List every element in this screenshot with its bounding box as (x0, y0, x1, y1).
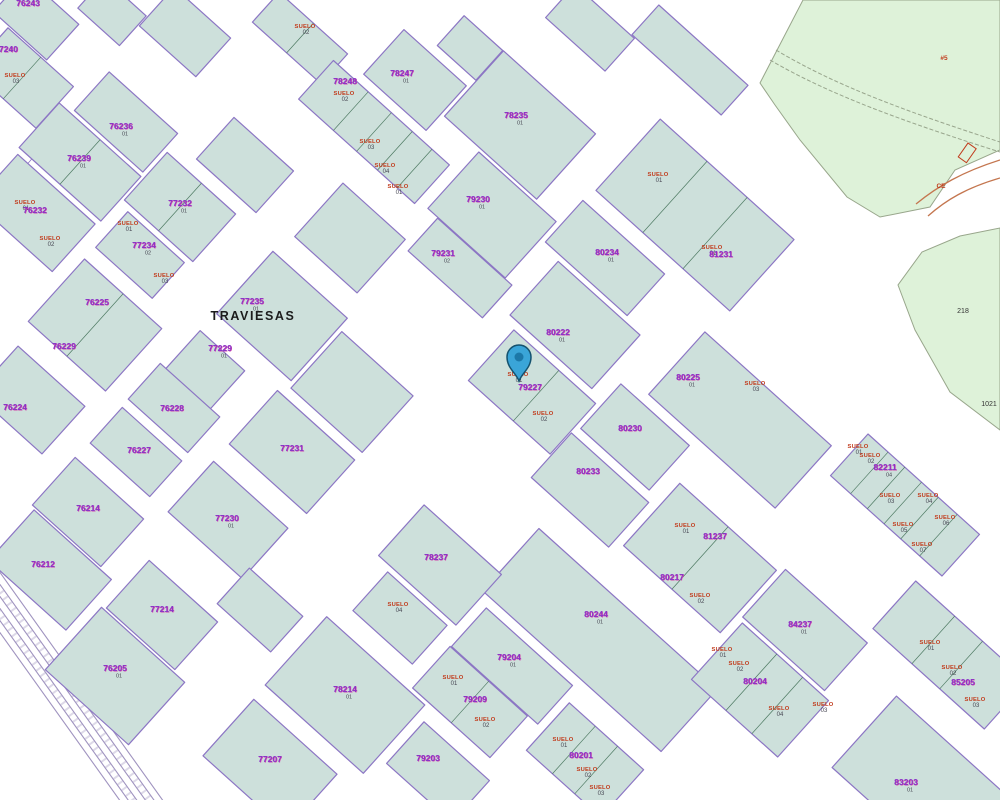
cadastral-map[interactable]: SUELO03SUELO01SUELO02SUELO01SUELO03SUELO… (0, 0, 1000, 800)
suelo-number: 02 (737, 667, 744, 673)
parcel-number-label: 76212 (31, 559, 55, 569)
parcel-block[interactable] (78, 0, 146, 46)
parcel-number: 78248 (333, 76, 357, 86)
parcel-number: 80233 (576, 466, 600, 476)
parcel-number: 83203 (894, 777, 918, 787)
parcel-number: 79204 (497, 652, 521, 662)
suelo-number: 01 (683, 529, 690, 535)
parcel-sub-number: 01 (608, 258, 614, 264)
parcel-block[interactable] (295, 183, 406, 293)
suelo-number: 07 (920, 548, 927, 554)
parcel-number: 81231 (709, 249, 733, 259)
parcel-number: 81237 (703, 531, 727, 541)
parcel-number-label: 85205 (951, 677, 975, 687)
suelo-number: 03 (753, 387, 760, 393)
parcel-block[interactable] (139, 0, 230, 77)
suelo-number: 02 (342, 97, 349, 103)
parcel-number: 77235 (240, 296, 264, 306)
suelo-number: 03 (13, 79, 20, 85)
parcel-sub-number: 01 (510, 663, 516, 669)
parcel-block[interactable] (831, 434, 980, 576)
parcel-sub-number: 01 (221, 354, 227, 360)
parcel-number: 77230 (215, 513, 239, 523)
parcel-number: 78214 (333, 684, 357, 694)
parcel-number: 76214 (76, 503, 100, 513)
suelo-number: 01 (451, 681, 458, 687)
parcel-number: 80201 (569, 750, 593, 760)
parcel-number: 78235 (504, 110, 528, 120)
parcel-sub-number: 01 (403, 79, 409, 85)
parcel-number-label: 81231 (709, 249, 733, 259)
suelo-number: 01 (561, 743, 568, 749)
parcel-number: 80225 (676, 372, 700, 382)
parcel-number-label: 80233 (576, 466, 600, 476)
parcel-number-label: 81237 (703, 531, 727, 541)
parcel-number: 76227 (127, 445, 151, 455)
map-annotation-#5: #5 (940, 55, 948, 62)
parcel-number: 77214 (150, 604, 174, 614)
parcel-block[interactable] (632, 5, 748, 115)
parcel-number: 76205 (103, 663, 127, 673)
parcel-sub-number: 01 (228, 524, 234, 530)
parcel-number: 76228 (160, 403, 184, 413)
parcel-sub-number: 01 (181, 209, 187, 215)
parcel-number: 77240 (0, 44, 18, 54)
parcel-sub-number: 02 (145, 251, 151, 257)
parcel-number: 77207 (258, 754, 282, 764)
parcel-number-label: 79209 (463, 694, 487, 704)
parcel-number-label: 76227 (127, 445, 151, 455)
parcel-number: 80222 (546, 327, 570, 337)
rustic-north-east[interactable] (760, 0, 1000, 217)
suelo-number: 01 (656, 178, 663, 184)
parcel-number: 85205 (951, 677, 975, 687)
parcel-number: 77232 (168, 198, 192, 208)
parcel-number-label: 80230 (618, 423, 642, 433)
suelo-number: 03 (368, 145, 375, 151)
parcel-number-label: 79203 (416, 753, 440, 763)
parcel-number-label: 77240 (0, 44, 18, 54)
parcel-number: 80234 (595, 247, 619, 257)
parcel-block[interactable] (217, 568, 303, 652)
parcel-sub-number: 01 (559, 338, 565, 344)
parcel-number: 82211 (873, 462, 896, 472)
suelo-number: 02 (698, 599, 705, 605)
parcel-number: 79203 (416, 753, 440, 763)
parcel-number: 79231 (431, 248, 455, 258)
parcel-sub-number: 01 (597, 620, 603, 626)
suelo-number: 04 (926, 499, 933, 505)
parcel-number: 76243 (16, 0, 40, 8)
parcel-number-label: 77207 (258, 754, 282, 764)
parcel-sub-number: 01 (517, 121, 523, 127)
parcel-number-label: 80201 (569, 750, 593, 760)
parcel-sub-number: 02 (444, 259, 450, 265)
parcel-number: 79230 (466, 194, 490, 204)
cadastral-map-viewport[interactable]: SUELO03SUELO01SUELO02SUELO01SUELO03SUELO… (0, 0, 1000, 800)
suelo-number: 02 (483, 723, 490, 729)
parcel-sub-number: 01 (80, 164, 86, 170)
parcel-number: 78247 (390, 68, 414, 78)
suelo-number: 01 (928, 646, 935, 652)
parcel-number: 79227 (518, 382, 542, 392)
parcel-number: 84237 (788, 619, 812, 629)
parcel-block[interactable] (649, 332, 832, 508)
suelo-number: 06 (943, 521, 950, 527)
parcel-number: 80217 (660, 572, 684, 582)
parcel-number: 80244 (584, 609, 608, 619)
suelo-number: 01 (396, 190, 403, 196)
suelo-number: 01 (720, 653, 727, 659)
suelo-number: 04 (777, 712, 784, 718)
parcel-sub-number: 01 (689, 383, 695, 389)
parcel-sub-number: 01 (801, 630, 807, 636)
suelo-number: 02 (541, 417, 548, 423)
parcel-number-label: 77231 (280, 443, 304, 453)
suelo-number: 03 (973, 703, 980, 709)
parcel-number-label: 79227 (518, 382, 542, 392)
suelo-number: 05 (901, 528, 908, 534)
street-name-label: TRAVIESAS (210, 309, 295, 323)
parcel-number-label: 80204 (743, 676, 767, 686)
parcel-number: 76236 (109, 121, 133, 131)
parcel-number: 80204 (743, 676, 767, 686)
parcel-sub-number: 01 (479, 205, 485, 211)
parcel-number-label: 77214 (150, 604, 174, 614)
parcel-number-label: 76214 (76, 503, 100, 513)
suelo-number: 02 (48, 242, 55, 248)
parcel-number-label: 76243 (16, 0, 40, 8)
parcel-number: 76232 (23, 205, 47, 215)
parcel-sub-number: 01 (116, 674, 122, 680)
parcel-number: 80230 (618, 423, 642, 433)
map-annotation-ce: CE (936, 183, 946, 190)
parcel-number: 76229 (52, 341, 76, 351)
suelo-number: 01 (126, 227, 133, 233)
parcel-number: 76212 (31, 559, 55, 569)
parcel-block[interactable] (546, 0, 635, 71)
parcel-number-label: 76229 (52, 341, 76, 351)
parcel-number-label: 76232 (23, 205, 47, 215)
parcel-number: 76225 (85, 297, 109, 307)
parcel-block[interactable] (0, 346, 85, 454)
parcel-number: 76239 (67, 153, 91, 163)
suelo-number: 03 (888, 499, 895, 505)
parcel-number: 77234 (132, 240, 156, 250)
parcel-number-label: 76224 (3, 402, 27, 412)
parcel-number-label: 76225 (85, 297, 109, 307)
parcel-sub-number: 01 (907, 788, 913, 794)
rustic-east[interactable] (898, 228, 1000, 430)
parcel-number: 76224 (3, 402, 27, 412)
parcel-number: 77231 (280, 443, 304, 453)
parcel-sub-number: 01 (122, 132, 128, 138)
suelo-number: 03 (821, 708, 828, 714)
parcel-number-label: 78237 (424, 552, 448, 562)
parcel-sub-number: 04 (886, 473, 892, 479)
parcel-number: 79209 (463, 694, 487, 704)
map-annotation-1021: 1021 (981, 401, 997, 408)
map-annotation-218: 218 (957, 308, 969, 315)
parcel-sub-number: 01 (346, 695, 352, 701)
suelo-number: 03 (162, 279, 169, 285)
suelo-number: 04 (383, 169, 390, 175)
suelo-number: 04 (396, 608, 403, 614)
parcel-number-label: 80217 (660, 572, 684, 582)
suelo-number: 02 (303, 30, 310, 36)
parcel-number: 77229 (208, 343, 232, 353)
parcel-number: 78237 (424, 552, 448, 562)
parcel-number-label: 76228 (160, 403, 184, 413)
parcel-number-label: 78248 (333, 76, 357, 86)
location-pin-hole (515, 353, 524, 362)
suelo-number: 03 (598, 791, 605, 797)
suelo-number: 02 (585, 773, 592, 779)
